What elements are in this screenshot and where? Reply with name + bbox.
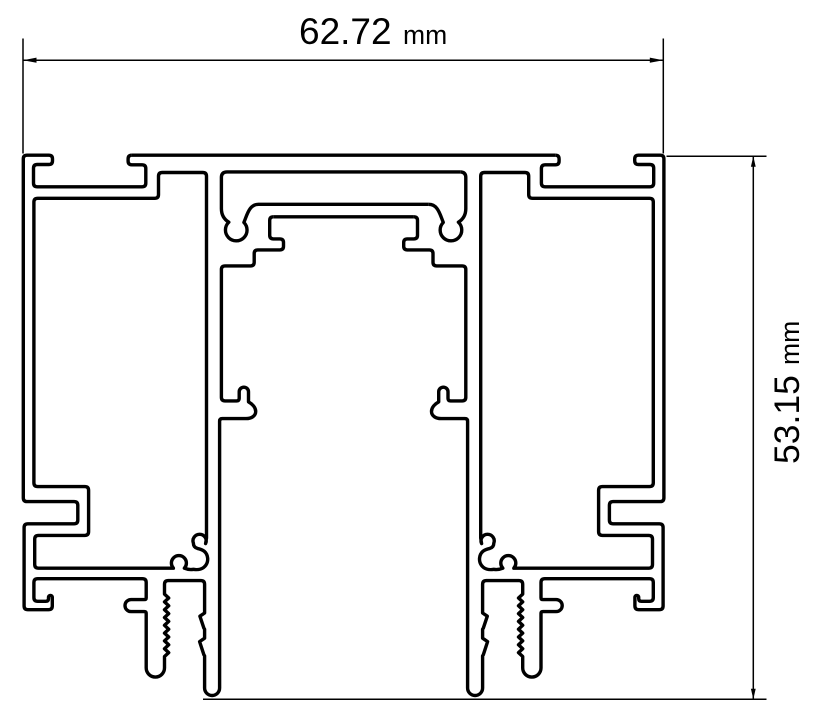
svg-text:mm: mm	[775, 321, 805, 365]
svg-text:mm: mm	[403, 20, 447, 50]
svg-text:53.15: 53.15	[767, 375, 807, 464]
svg-text:62.72: 62.72	[299, 11, 392, 52]
